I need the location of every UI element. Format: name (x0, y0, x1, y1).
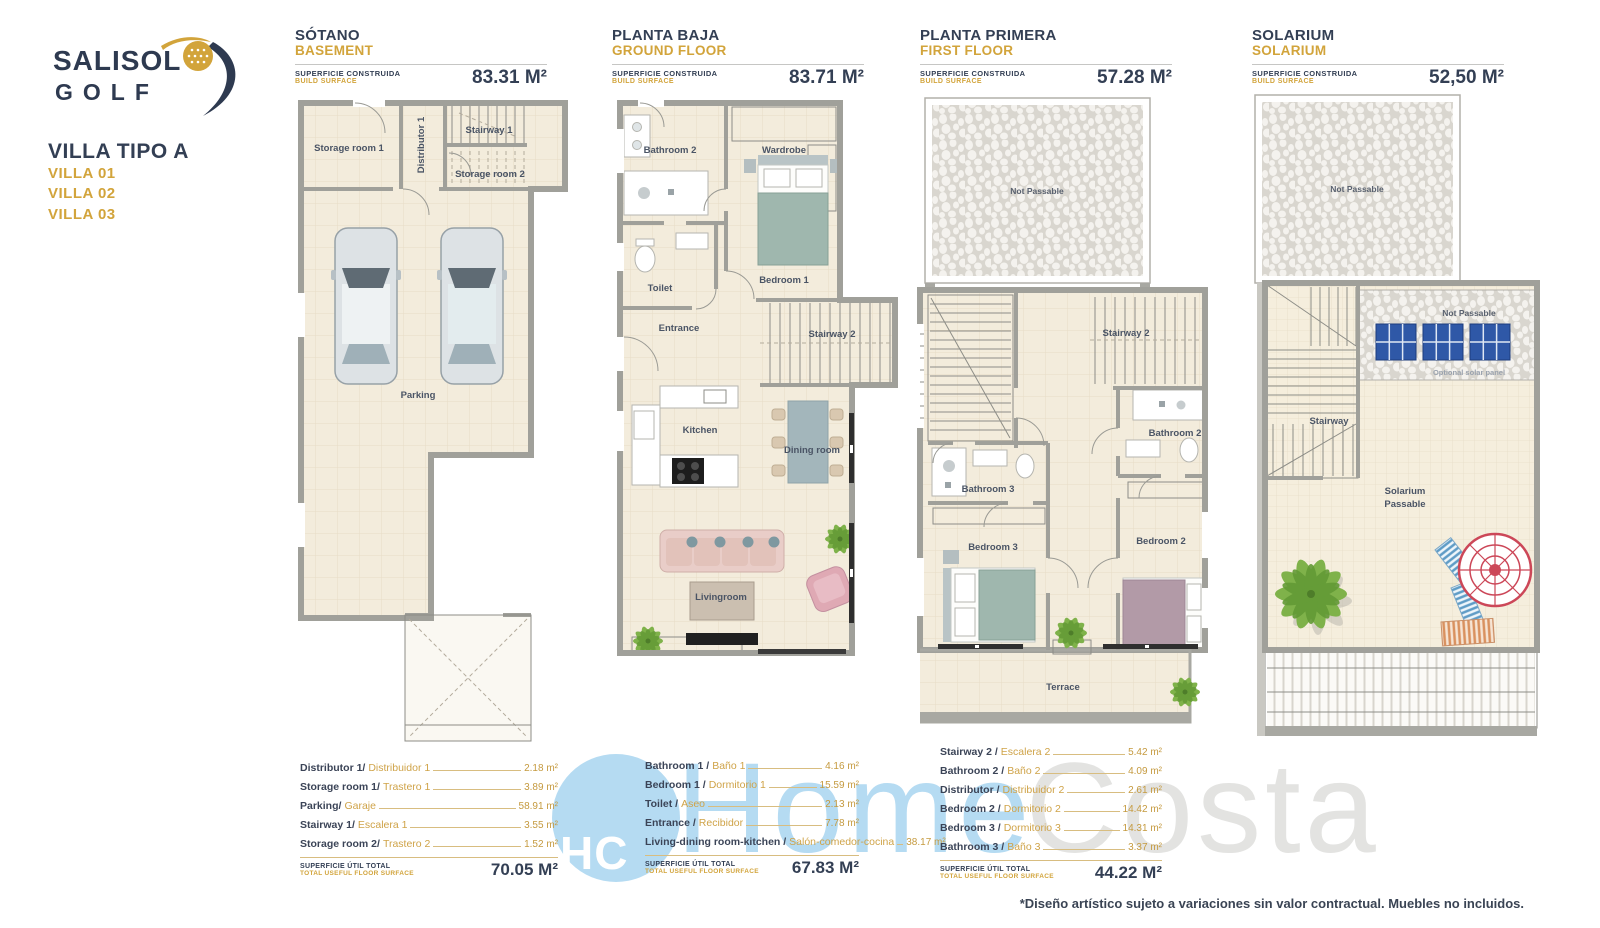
car-icon (437, 228, 507, 384)
room-label: Storage room 2 (455, 169, 525, 180)
shower-icon (624, 171, 708, 215)
table-row: Parking/Garaje58.91 m² (300, 800, 558, 812)
not-passable-area: Not Passable (925, 98, 1150, 283)
not-passable-area: Not Passable (1255, 95, 1460, 283)
plan-title-en: GROUND FLOOR (612, 44, 864, 59)
villa-unit-2: VILLA 02 (48, 184, 189, 204)
room-label: Passable (1384, 499, 1425, 510)
room-label: Toilet (648, 283, 673, 294)
plan-title-es: SOLARIUM (1252, 28, 1504, 44)
bed-icon (1123, 578, 1203, 648)
table-row: Living-dining room-kitchen /Salón-comedo… (645, 836, 859, 848)
room-label: Stairway 2 (1103, 328, 1150, 339)
villa-type-title: VILLA TIPO A (48, 140, 189, 164)
pergola (1257, 650, 1537, 736)
table-row: Bathroom 3 /Baño 33.37 m² (940, 841, 1162, 853)
not-passable-area: Not Passable Optional solar panel (1358, 290, 1537, 380)
plan-title-en: SOLARIUM (1252, 44, 1504, 59)
dining-table-icon (772, 401, 843, 483)
room-label: Bedroom 2 (1136, 536, 1186, 547)
firstfloor-header: PLANTA PRIMERA FIRST FLOOR SUPERFICIE CO… (920, 28, 1172, 89)
stove-icon (672, 458, 704, 484)
logo-text-golf: GOLF (55, 79, 159, 105)
table-row: Toilet /Aseo2.13 m² (645, 798, 859, 810)
floorplan-sheet: SALISOL GOLF VILLA TIPO A VILLA 01 VILLA… (0, 0, 1600, 928)
groundfloor-table: Bathroom 1 /Baño 14.16 m² Bedroom 1 /Dor… (645, 760, 859, 878)
total-label-en: TOTAL USEFUL FLOOR SURFACE (300, 870, 414, 877)
surface-label-en: BUILD SURFACE (295, 78, 401, 85)
total-label-en: TOTAL USEFUL FLOOR SURFACE (645, 868, 759, 875)
room-label: Bedroom 1 (759, 275, 809, 286)
table-row: Bathroom 2 /Baño 24.09 m² (940, 765, 1162, 777)
table-row: Distributor 1/Distribuidor 12.18 m² (300, 762, 558, 774)
surface-label-es: SUPERFICIE CONSTRUIDA (295, 69, 401, 78)
golf-ball-icon (183, 41, 213, 71)
table-total-row: SUPERFICIE ÚTIL TOTAL TOTAL USEFUL FLOOR… (940, 860, 1162, 883)
build-surface-value: 57.28 M² (1097, 67, 1172, 89)
total-useful-surface-value: 44.22 M² (1095, 863, 1162, 883)
room-label: Not Passable (1010, 186, 1064, 196)
room-label: Terrace (1046, 682, 1080, 693)
total-label-es: SUPERFICIE ÚTIL TOTAL (300, 863, 414, 870)
room-label: Not Passable (1442, 308, 1496, 318)
room-label: Dining room (784, 445, 840, 456)
surface-label-en: BUILD SURFACE (920, 78, 1026, 85)
firstfloor-floorplan: Not Passable (913, 88, 1213, 748)
sink-icon (676, 233, 708, 249)
room-label: Stairway 2 (809, 329, 856, 340)
villa-unit-1: VILLA 01 (48, 164, 189, 184)
plan-title-en: BASEMENT (295, 44, 547, 59)
sink-icon (1126, 440, 1160, 457)
table-row: Storage room 2/Trastero 21.52 m² (300, 838, 558, 850)
table-row: Bedroom 2 /Dormitorio 214.42 m² (940, 803, 1162, 815)
room-label: Parking (401, 390, 436, 401)
total-useful-surface-value: 70.05 M² (491, 860, 558, 880)
table-total-row: SUPERFICIE ÚTIL TOTAL TOTAL USEFUL FLOOR… (645, 855, 859, 878)
room-label: Livingroom (695, 592, 747, 603)
plan-title-es: PLANTA BAJA (612, 28, 864, 44)
room-label: Stairway 1 (466, 125, 514, 136)
surface-label-es: SUPERFICIE CONSTRUIDA (920, 69, 1026, 78)
table-row: Entrance /Recibidor7.78 m² (645, 817, 859, 829)
room-label: Solarium (1385, 486, 1426, 497)
total-useful-surface-value: 67.83 M² (792, 858, 859, 878)
room-label: Distributor 1 (416, 116, 427, 173)
table-total-row: SUPERFICIE ÚTIL TOTAL TOTAL USEFUL FLOOR… (300, 857, 558, 880)
tv-icon (686, 633, 758, 645)
room-label: Bedroom 3 (968, 542, 1018, 553)
plan-title-en: FIRST FLOOR (920, 44, 1172, 59)
toilet-icon (635, 239, 655, 272)
table-row: Bedroom 3 /Dormitorio 314.31 m² (940, 822, 1162, 834)
room-label: Not Passable (1330, 184, 1384, 194)
firstfloor-table: Stairway 2 /Escalera 25.42 m² Bathroom 2… (940, 746, 1162, 883)
room-label: Bathroom 3 (962, 484, 1015, 495)
room-label: Storage room 1 (314, 143, 384, 154)
villa-block: VILLA TIPO A VILLA 01 VILLA 02 VILLA 03 (48, 140, 189, 225)
room-label: Bathroom 2 (644, 145, 697, 156)
surface-label-es: SUPERFICIE CONSTRUIDA (1252, 69, 1358, 78)
room-label: Optional solar panel (1433, 368, 1505, 377)
surface-label-en: BUILD SURFACE (612, 78, 718, 85)
room-label: Wardrobe (762, 145, 806, 156)
room-label: Kitchen (683, 425, 718, 436)
sink-icon (973, 450, 1007, 466)
build-surface-value: 83.71 M² (789, 67, 864, 89)
plan-title-es: SÓTANO (295, 28, 547, 44)
umbrella-icon (1459, 534, 1531, 606)
basement-table: Distributor 1/Distribuidor 12.18 m² Stor… (300, 762, 558, 880)
table-row: Stairway 2 /Escalera 25.42 m² (940, 746, 1162, 758)
basement-floorplan: Storage room 1 Distributor 1 Stairway 1 … (293, 93, 585, 753)
villa-unit-3: VILLA 03 (48, 205, 189, 225)
table-row: Storage room 1/Trastero 13.89 m² (300, 781, 558, 793)
build-surface-value: 52,50 M² (1429, 67, 1504, 89)
disclaimer-text: *Diseño artístico sujeto a variaciones s… (1020, 896, 1524, 911)
solar-panel-icon (1376, 324, 1416, 360)
room-label: Stairway (1309, 416, 1349, 427)
car-icon (331, 228, 401, 384)
sun-lounger-icon (1441, 618, 1495, 646)
logo-text-salisol: SALISOL (53, 45, 181, 76)
solarium-header: SOLARIUM SOLARIUM SUPERFICIE CONSTRUIDA … (1252, 28, 1504, 89)
room-label: Entrance (659, 323, 700, 334)
table-row: Bedroom 1 /Dormitorio 115.59 m² (645, 779, 859, 791)
table-row: Stairway 1/Escalera 13.55 m² (300, 819, 558, 831)
bathtub-icon (1133, 390, 1203, 420)
build-surface-value: 83.31 M² (472, 67, 547, 89)
toilet-icon (1016, 454, 1034, 478)
toilet-icon (1180, 438, 1198, 462)
basement-header: SÓTANO BASEMENT SUPERFICIE CONSTRUIDA BU… (295, 28, 547, 89)
watermark-initials: HC (560, 826, 628, 880)
groundfloor-header: PLANTA BAJA GROUND FLOOR SUPERFICIE CONS… (612, 28, 864, 89)
total-label-en: TOTAL USEFUL FLOOR SURFACE (940, 873, 1054, 880)
table-row: Distributor /Distribuidor 22.61 m² (940, 784, 1162, 796)
surface-label-es: SUPERFICIE CONSTRUIDA (612, 69, 718, 78)
groundfloor-floorplan: Bathroom 2 Wardrobe Toilet Bedroom 1 Ent… (608, 93, 904, 683)
bed-icon (744, 155, 840, 265)
total-label-es: SUPERFICIE ÚTIL TOTAL (940, 866, 1054, 873)
plan-title-es: PLANTA PRIMERA (920, 28, 1172, 44)
solar-panel-icon (1423, 324, 1463, 360)
total-label-es: SUPERFICIE ÚTIL TOTAL (645, 861, 759, 868)
solarium-floorplan: Not Passable Not Passable (1243, 88, 1553, 748)
sofa-icon (660, 530, 784, 572)
solar-panel-icon (1470, 324, 1510, 360)
surface-label-en: BUILD SURFACE (1252, 78, 1358, 85)
room-label: Bathroom 2 (1149, 428, 1202, 439)
table-row: Bathroom 1 /Baño 14.16 m² (645, 760, 859, 772)
salisol-golf-logo: SALISOL GOLF (45, 30, 260, 135)
